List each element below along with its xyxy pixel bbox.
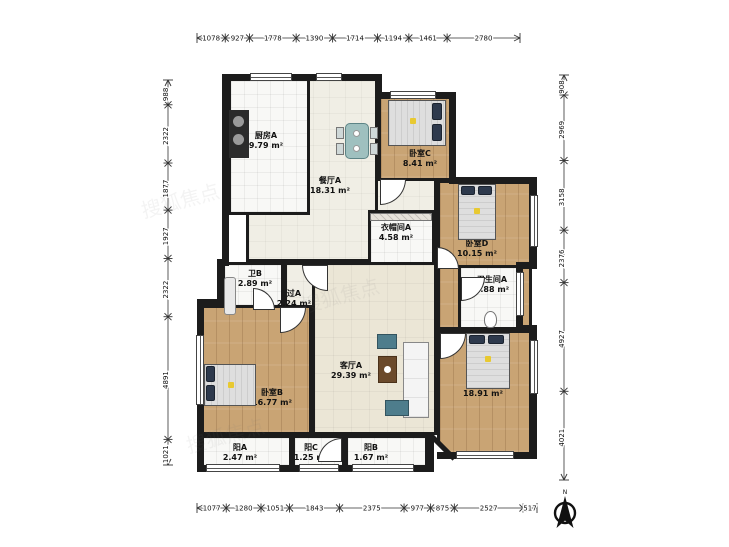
room-area: 18.31 m²	[310, 186, 350, 196]
bed-lamp-icon	[410, 118, 416, 124]
room-label-living-a: 客厅A29.39 m²	[331, 361, 371, 382]
room-area: 29.39 m²	[331, 371, 371, 381]
room-label-balcony-a: 阳A2.47 m²	[223, 443, 257, 464]
room-area: 8.41 m²	[403, 159, 437, 169]
room-area: 4.58 m²	[379, 233, 413, 243]
pillow-icon	[432, 124, 442, 141]
room-label-kitchen-a: 厨房A9.79 m²	[249, 131, 283, 152]
floorplan-canvas: 餐厅A18.31 m²厨房A9.79 m²卧室C8.41 m²卧室D10.15 …	[0, 0, 729, 547]
pillow-icon	[478, 186, 492, 195]
window	[250, 73, 292, 81]
chair-icon	[370, 127, 378, 139]
window	[352, 464, 414, 472]
room-label-cloakroom-a: 衣帽间A4.58 m²	[379, 223, 413, 244]
room-label-bedroom-c: 卧室C8.41 m²	[403, 149, 437, 170]
room-area: 10.15 m²	[457, 249, 497, 259]
room-label-balcony-b: 阳B1.67 m²	[354, 443, 388, 464]
pillow-icon	[206, 385, 215, 401]
window	[316, 73, 342, 81]
pillow-icon	[206, 366, 215, 382]
room-area: 2.47 m²	[223, 453, 257, 463]
room-name: 客厅A	[331, 361, 371, 371]
pillow-icon	[461, 186, 475, 195]
room-label-bath-b: 卫B2.89 m²	[238, 269, 272, 290]
room-area: 16.77 m²	[252, 398, 292, 408]
room-name: 衣帽间A	[379, 223, 413, 233]
bed-lamp-icon	[228, 382, 234, 388]
bed-lamp-icon	[485, 356, 491, 362]
chair-icon	[336, 143, 344, 155]
chair-icon	[370, 143, 378, 155]
wall	[449, 177, 537, 184]
window	[530, 340, 538, 394]
window	[299, 464, 339, 472]
room-name: 卧室B	[252, 388, 292, 398]
burner-icon	[233, 116, 244, 127]
wall	[449, 92, 456, 184]
plate-icon	[353, 130, 360, 137]
room-label-bedroom-b: 卧室B16.77 m²	[252, 388, 292, 409]
armchair-icon	[385, 400, 409, 416]
table-decor-icon	[384, 366, 391, 373]
window	[456, 451, 514, 459]
room-name: 厨房A	[249, 131, 283, 141]
dining-table-icon	[345, 123, 369, 159]
room-label-dining-a: 餐厅A18.31 m²	[310, 176, 350, 197]
window	[206, 464, 280, 472]
pillow-icon	[488, 335, 504, 344]
chair-icon	[336, 127, 344, 139]
window	[196, 335, 204, 405]
room-area: 18.91 m²	[463, 389, 503, 399]
room-name: 阳A	[223, 443, 257, 453]
room-name: 卫B	[238, 269, 272, 279]
window	[516, 272, 524, 316]
room-name: 阳B	[354, 443, 388, 453]
window	[390, 91, 436, 99]
room-area: 9.79 m²	[249, 141, 283, 151]
bed-lamp-icon	[474, 208, 480, 214]
wall	[222, 74, 229, 266]
pillow-icon	[432, 103, 442, 120]
north-arrow: N	[548, 486, 584, 534]
plate-icon	[353, 145, 360, 152]
room-area: 1.67 m²	[354, 453, 388, 463]
wardrobe-icon	[370, 213, 432, 221]
room-label-bedroom-d: 卧室D10.15 m²	[457, 239, 497, 260]
compass-label: N	[563, 489, 568, 496]
window	[530, 195, 538, 247]
toilet-icon	[484, 311, 497, 328]
burner-icon	[233, 134, 244, 145]
bathtub-icon	[224, 277, 236, 315]
armchair-icon	[377, 334, 397, 349]
room-name: 过A	[277, 289, 311, 299]
pillow-icon	[469, 335, 485, 344]
room-name: 卧室C	[403, 149, 437, 159]
room-name: 卧室D	[457, 239, 497, 249]
room-name: 餐厅A	[310, 176, 350, 186]
wall	[222, 74, 382, 81]
